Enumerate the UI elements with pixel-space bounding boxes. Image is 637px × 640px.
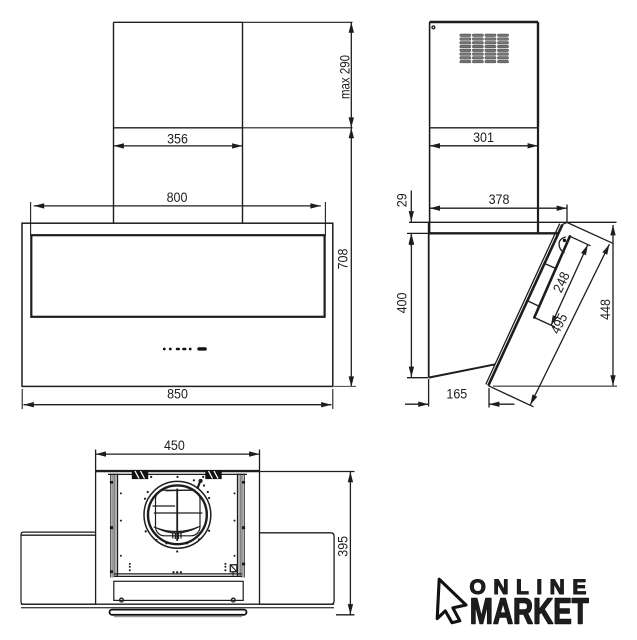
svg-text:448: 448 [597,299,613,320]
svg-text:378: 378 [489,191,510,207]
svg-text:850: 850 [167,385,188,401]
svg-text:395: 395 [334,536,350,557]
svg-text:max 290: max 290 [336,55,352,99]
svg-text:400: 400 [394,292,410,313]
svg-text:708: 708 [335,248,351,269]
svg-text:450: 450 [164,437,185,453]
svg-text:MARKET: MARKET [470,591,589,631]
svg-text:356: 356 [167,130,188,146]
svg-text:301: 301 [473,129,494,145]
svg-text:165: 165 [446,386,467,402]
svg-text:29: 29 [394,193,410,207]
svg-text:800: 800 [167,189,188,205]
